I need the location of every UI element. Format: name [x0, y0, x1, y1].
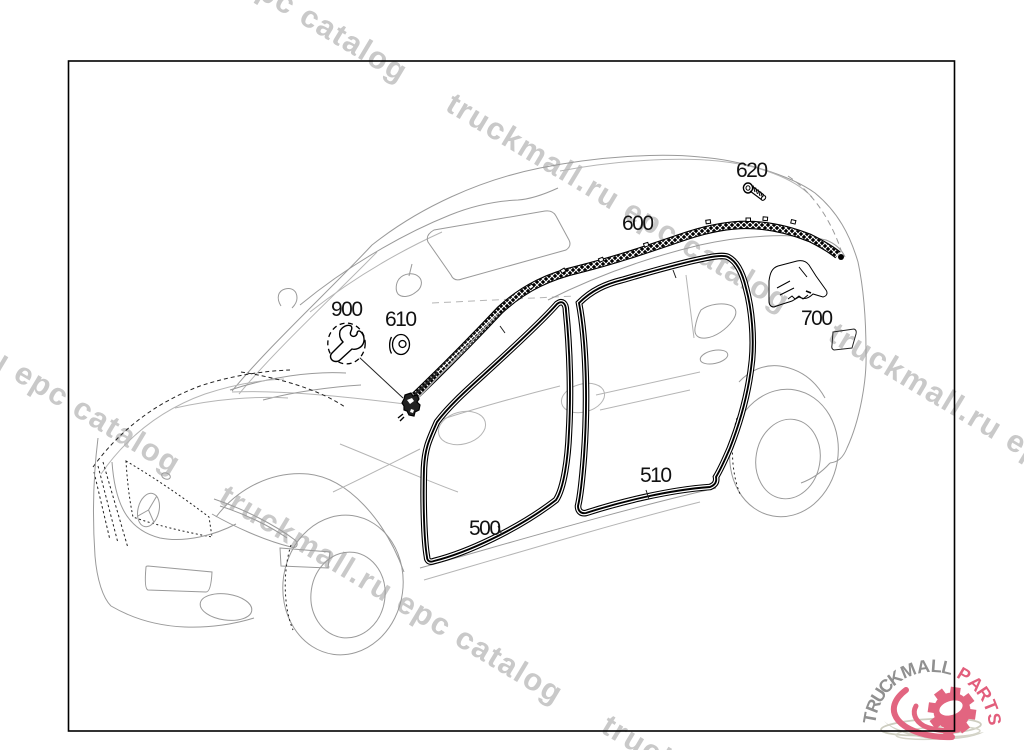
svg-text:610: 610: [385, 308, 416, 331]
svg-text:A: A: [915, 656, 931, 678]
svg-text:S: S: [983, 712, 1005, 727]
svg-text:510: 510: [640, 464, 671, 487]
svg-text:900: 900: [331, 298, 362, 321]
svg-text:500: 500: [469, 517, 500, 540]
svg-text:620: 620: [736, 159, 767, 182]
svg-text:600: 600: [622, 212, 653, 235]
svg-text:700: 700: [801, 307, 832, 330]
